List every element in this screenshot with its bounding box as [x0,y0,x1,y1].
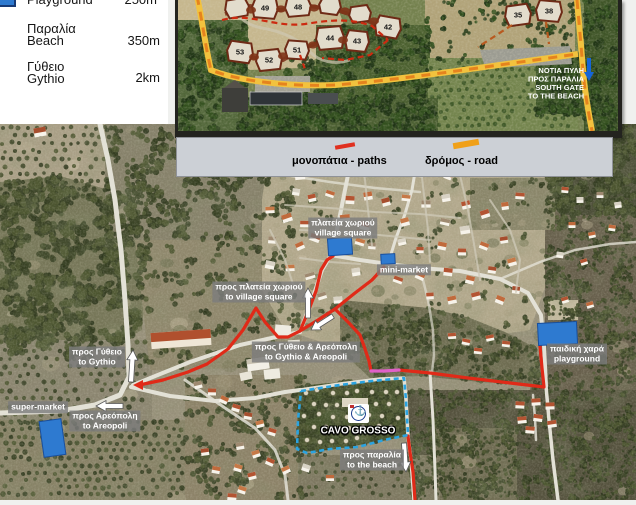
svg-text:51: 51 [293,46,301,55]
svg-text:49: 49 [261,4,269,13]
svg-text:53: 53 [236,48,244,57]
svg-text:38: 38 [545,7,553,16]
svg-text:52: 52 [265,56,273,65]
svg-text:44: 44 [326,34,335,43]
svg-text:35: 35 [514,11,522,20]
svg-text:48: 48 [294,3,302,12]
svg-text:42: 42 [384,23,392,32]
svg-text:43: 43 [353,37,361,46]
